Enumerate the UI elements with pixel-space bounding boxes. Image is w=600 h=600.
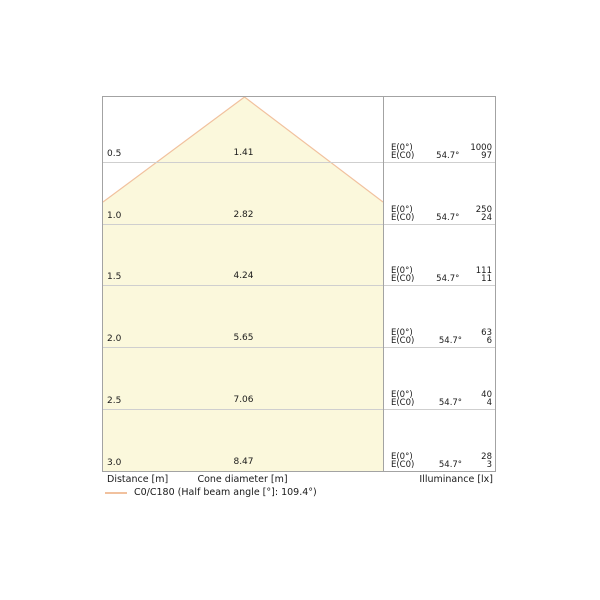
illuminance-block: E(0°)250E(C0)54.7°24 bbox=[391, 206, 492, 222]
ec0-label: E(C0) bbox=[391, 461, 414, 469]
illuminance-block: E(0°)28E(C0)54.7°3 bbox=[391, 453, 492, 469]
illuminance-block: E(0°)63E(C0)54.7°6 bbox=[391, 329, 492, 345]
cone-table-row: 1.02.82E(0°)250E(C0)54.7°24 bbox=[103, 163, 495, 225]
footer-illuminance-label: Illuminance [lx] bbox=[419, 474, 493, 485]
cone-diameter-value: 1.41 bbox=[103, 148, 384, 158]
ec0-value: 6 bbox=[487, 337, 492, 345]
half-angle-value: 54.7° bbox=[436, 275, 459, 283]
cone-table-row: 3.08.47E(0°)28E(C0)54.7°3 bbox=[103, 410, 495, 471]
half-angle-value: 54.7° bbox=[439, 399, 462, 407]
legend: C0/C180 (Half beam angle [°]: 109.4°) bbox=[105, 486, 317, 499]
ec0-line: E(C0)54.7°24 bbox=[391, 214, 492, 222]
ec0-line: E(C0)54.7°4 bbox=[391, 399, 492, 407]
ec0-value: 11 bbox=[481, 275, 492, 283]
ec0-line: E(C0)54.7°6 bbox=[391, 337, 492, 345]
ec0-value: 3 bbox=[487, 461, 492, 469]
illuminance-block: E(0°)40E(C0)54.7°4 bbox=[391, 391, 492, 407]
cone-table-row: 2.05.65E(0°)63E(C0)54.7°6 bbox=[103, 286, 495, 348]
cone-diameter-value: 7.06 bbox=[103, 395, 384, 405]
light-cone-diagram: 0.51.41E(0°)1000E(C0)54.7°971.02.82E(0°)… bbox=[102, 96, 496, 472]
cone-diameter-value: 2.82 bbox=[103, 210, 384, 220]
half-angle-value: 54.7° bbox=[439, 461, 462, 469]
illuminance-block: E(0°)1000E(C0)54.7°97 bbox=[391, 144, 492, 160]
ec0-label: E(C0) bbox=[391, 337, 414, 345]
cone-diameter-value: 4.24 bbox=[103, 271, 384, 281]
ec0-line: E(C0)54.7°97 bbox=[391, 152, 492, 160]
illuminance-block: E(0°)111E(C0)54.7°11 bbox=[391, 267, 492, 283]
ec0-label: E(C0) bbox=[391, 399, 414, 407]
ec0-value: 4 bbox=[487, 399, 492, 407]
ec0-label: E(C0) bbox=[391, 152, 414, 160]
light-cone-diagram-page: 0.51.41E(0°)1000E(C0)54.7°971.02.82E(0°)… bbox=[0, 0, 600, 600]
cone-diameter-value: 5.65 bbox=[103, 333, 384, 343]
half-angle-value: 54.7° bbox=[436, 214, 459, 222]
ec0-line: E(C0)54.7°11 bbox=[391, 275, 492, 283]
column-separator bbox=[383, 97, 384, 471]
cone-table-row: 0.51.41E(0°)1000E(C0)54.7°97 bbox=[103, 97, 495, 163]
half-angle-value: 54.7° bbox=[439, 337, 462, 345]
cone-diameter-value: 8.47 bbox=[103, 457, 384, 467]
cone-table-row: 1.54.24E(0°)111E(C0)54.7°11 bbox=[103, 225, 495, 287]
ec0-value: 24 bbox=[481, 214, 492, 222]
cone-table-row: 2.57.06E(0°)40E(C0)54.7°4 bbox=[103, 348, 495, 410]
ec0-label: E(C0) bbox=[391, 214, 414, 222]
half-angle-value: 54.7° bbox=[436, 152, 459, 160]
ec0-label: E(C0) bbox=[391, 275, 414, 283]
ec0-line: E(C0)54.7°3 bbox=[391, 461, 492, 469]
legend-label: C0/C180 (Half beam angle [°]: 109.4°) bbox=[134, 487, 317, 498]
legend-line-icon bbox=[105, 492, 127, 494]
footer-cone-diameter-label: Cone diameter [m] bbox=[102, 474, 383, 485]
ec0-value: 97 bbox=[481, 152, 492, 160]
